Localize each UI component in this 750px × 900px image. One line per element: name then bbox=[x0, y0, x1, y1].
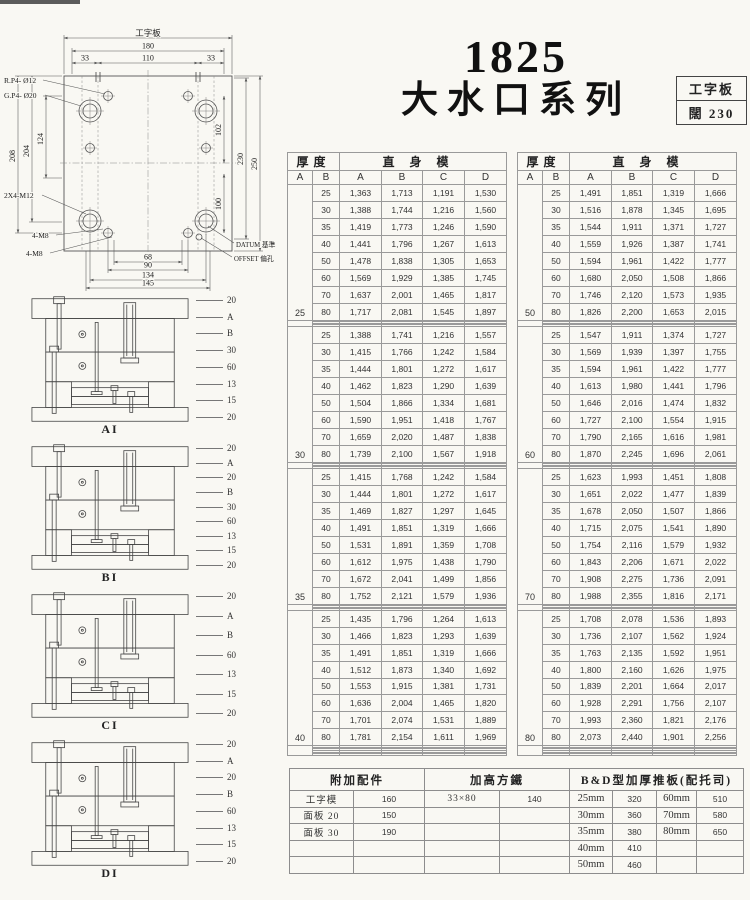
value-cell: 70 bbox=[543, 286, 570, 303]
value-cell: 1,823 bbox=[382, 377, 423, 394]
value-cell: 1,851 bbox=[382, 519, 423, 536]
value-cell: 25 bbox=[313, 326, 340, 343]
value-cell: 2,165 bbox=[612, 428, 653, 445]
callout-leaders bbox=[42, 80, 234, 257]
value-cell: 1,666 bbox=[695, 185, 737, 202]
bd-value-2 bbox=[697, 857, 744, 874]
accessory-value: 160 bbox=[354, 791, 425, 808]
value-cell: 25 bbox=[543, 610, 570, 627]
callout-label: A bbox=[227, 612, 234, 621]
bd-size-2 bbox=[657, 857, 697, 874]
value-cell: 40 bbox=[313, 377, 340, 394]
value-cell: 35 bbox=[313, 360, 340, 377]
value-cell: 1,746 bbox=[570, 286, 612, 303]
value-cell: 1,216 bbox=[423, 201, 465, 218]
value-cell: 70 bbox=[543, 712, 570, 729]
value-cell: 1,897 bbox=[465, 303, 507, 320]
bd-size-1: 50mm bbox=[570, 857, 613, 874]
value-cell: 35 bbox=[313, 502, 340, 519]
riser-value bbox=[500, 824, 570, 841]
bottom-table-row: 面板 3019035mm38080mm650 bbox=[290, 824, 744, 841]
value-cell: 1,969 bbox=[465, 729, 507, 746]
column-header-row: ABABCD bbox=[518, 171, 737, 185]
col-header: D bbox=[695, 171, 737, 185]
thickness-a-value: 25 bbox=[288, 185, 313, 321]
callout-label: 13 bbox=[227, 532, 236, 541]
value-cell: 1,305 bbox=[423, 252, 465, 269]
value-cell: 30 bbox=[543, 485, 570, 502]
value-cell: 1,381 bbox=[423, 678, 465, 695]
riser-value bbox=[500, 840, 570, 857]
leader-line bbox=[196, 300, 223, 301]
table-row: 351,7632,1351,5921,951 bbox=[518, 644, 737, 661]
leader-line bbox=[196, 463, 223, 464]
value-cell: 1,890 bbox=[695, 519, 737, 536]
value-cell: 2,100 bbox=[612, 411, 653, 428]
value-cell: 1,441 bbox=[340, 235, 382, 252]
col-header: B bbox=[382, 171, 423, 185]
callout-label: 30 bbox=[227, 346, 236, 355]
callout-label: 13 bbox=[227, 670, 236, 679]
plan-svg: 工字板 180 33 110 33 208 204 124 102 100 23… bbox=[2, 26, 287, 298]
callout-label: B bbox=[227, 329, 233, 338]
table-row: 701,7012,0741,5311,889 bbox=[288, 712, 507, 729]
value-cell: 1,666 bbox=[465, 519, 507, 536]
table-row: 301,4441,8011,2721,617 bbox=[288, 485, 507, 502]
value-cell: 1,696 bbox=[653, 445, 695, 462]
value-cell: 2,107 bbox=[695, 695, 737, 712]
value-cell: 1,639 bbox=[465, 377, 507, 394]
table-row: 351,4441,8011,2721,617 bbox=[288, 360, 507, 377]
value-cell: 1,363 bbox=[340, 185, 382, 202]
callout-label: B bbox=[227, 631, 233, 640]
value-cell: 1,727 bbox=[695, 218, 737, 235]
value-cell: 1,438 bbox=[423, 553, 465, 570]
value-cell: 60 bbox=[313, 269, 340, 286]
accessory-value bbox=[354, 857, 425, 874]
mold-section-drawing bbox=[26, 740, 194, 866]
value-cell: 1,388 bbox=[340, 201, 382, 218]
callout-label: 20 bbox=[227, 709, 236, 718]
value-cell: 1,418 bbox=[423, 411, 465, 428]
value-cell: 1,491 bbox=[570, 185, 612, 202]
section-caption: BI bbox=[26, 570, 194, 585]
value-cell: 2,120 bbox=[612, 286, 653, 303]
value-cell: 1,319 bbox=[653, 185, 695, 202]
col-header: A bbox=[518, 171, 543, 185]
accessory-value: 190 bbox=[354, 824, 425, 841]
bd-value-1: 360 bbox=[613, 807, 657, 824]
value-cell: 70 bbox=[543, 570, 570, 587]
value-cell: 2,041 bbox=[382, 570, 423, 587]
thickness-a-empty bbox=[288, 746, 313, 756]
value-cell: 1,817 bbox=[465, 286, 507, 303]
value-cell: 2,017 bbox=[695, 678, 737, 695]
value-cell: 1,560 bbox=[465, 201, 507, 218]
value-cell: 60 bbox=[313, 411, 340, 428]
value-cell: 1,832 bbox=[695, 394, 737, 411]
leader-line bbox=[196, 448, 223, 449]
bd-size-1: 35mm bbox=[570, 824, 613, 841]
value-cell: 1,617 bbox=[465, 485, 507, 502]
m12-callout: 2X4-M12 bbox=[4, 191, 34, 200]
value-cell: 2,022 bbox=[612, 485, 653, 502]
value-cell: 35 bbox=[543, 360, 570, 377]
table-row: 701,9082,2751,7362,091 bbox=[518, 570, 737, 587]
value-cell: 40 bbox=[313, 661, 340, 678]
accessory-name: 工字模 bbox=[290, 791, 354, 808]
table-row: 601,9282,2911,7562,107 bbox=[518, 695, 737, 712]
table-row: 351,5441,9111,3711,727 bbox=[518, 218, 737, 235]
leader-line bbox=[196, 350, 223, 351]
value-cell: 1,856 bbox=[465, 570, 507, 587]
dimension-callout: 20 bbox=[196, 444, 236, 453]
value-cell: 60 bbox=[313, 695, 340, 712]
leader-line bbox=[196, 694, 223, 695]
value-cell: 60 bbox=[313, 553, 340, 570]
value-cell: 1,584 bbox=[465, 343, 507, 360]
bd-header: B&D型加厚推板(配托司) bbox=[570, 769, 744, 791]
value-cell: 1,444 bbox=[340, 485, 382, 502]
value-cell: 50 bbox=[543, 394, 570, 411]
value-cell: 1,246 bbox=[423, 218, 465, 235]
value-cell: 2,200 bbox=[612, 303, 653, 320]
riser-size bbox=[425, 824, 500, 841]
table-row: 401,4411,7961,2671,613 bbox=[288, 235, 507, 252]
value-cell: 1,592 bbox=[653, 644, 695, 661]
value-cell: 1,908 bbox=[570, 570, 612, 587]
value-cell: 2,020 bbox=[382, 428, 423, 445]
offset-callout: OFFSET 偏孔 bbox=[234, 254, 274, 263]
value-cell: 1,756 bbox=[653, 695, 695, 712]
value-cell: 1,681 bbox=[465, 394, 507, 411]
value-cell: 1,465 bbox=[423, 695, 465, 712]
value-cell: 2,160 bbox=[612, 661, 653, 678]
value-cell: 2,081 bbox=[382, 303, 423, 320]
value-cell: 1,646 bbox=[570, 394, 612, 411]
callout-label: 20 bbox=[227, 296, 236, 305]
bd-size-1: 30mm bbox=[570, 807, 613, 824]
value-cell: 1,961 bbox=[612, 360, 653, 377]
value-cell: 2,001 bbox=[382, 286, 423, 303]
thickness-a-empty bbox=[518, 746, 543, 756]
empty-row bbox=[518, 754, 737, 756]
value-cell: 1,584 bbox=[465, 468, 507, 485]
callout-label: 15 bbox=[227, 546, 236, 555]
value-cell: 30 bbox=[313, 343, 340, 360]
table-row: 801,9882,3551,8162,171 bbox=[518, 587, 737, 604]
value-cell: 1,216 bbox=[423, 326, 465, 343]
empty-cell bbox=[695, 754, 737, 756]
value-cell: 1,415 bbox=[340, 468, 382, 485]
table-row: 601,6121,9751,4381,790 bbox=[288, 553, 507, 570]
value-cell: 1,562 bbox=[653, 627, 695, 644]
accessory-name: 面板 20 bbox=[290, 807, 354, 824]
value-cell: 1,870 bbox=[570, 445, 612, 462]
value-cell: 1,918 bbox=[465, 445, 507, 462]
value-cell: 30 bbox=[543, 343, 570, 360]
value-cell: 1,507 bbox=[653, 502, 695, 519]
bd-size-1: 25mm bbox=[570, 791, 613, 808]
value-cell: 1,293 bbox=[423, 627, 465, 644]
value-cell: 1,924 bbox=[695, 627, 737, 644]
value-cell: 2,022 bbox=[695, 553, 737, 570]
bottom-header-row: 附加配件 加高方鐵 B&D型加厚推板(配托司) bbox=[290, 769, 744, 791]
table-row: 351,4911,8511,3191,666 bbox=[288, 644, 507, 661]
value-cell: 1,444 bbox=[340, 360, 382, 377]
bd-value-2: 580 bbox=[697, 807, 744, 824]
value-cell: 1,951 bbox=[695, 644, 737, 661]
table-row: 401,4621,8231,2901,639 bbox=[288, 377, 507, 394]
value-cell: 1,297 bbox=[423, 502, 465, 519]
value-cell: 1,491 bbox=[340, 644, 382, 661]
table-row: 60251,5471,9111,3741,727 bbox=[518, 326, 737, 343]
value-cell: 30 bbox=[543, 201, 570, 218]
table-row: 701,6592,0201,4871,838 bbox=[288, 428, 507, 445]
svg-text:110: 110 bbox=[142, 54, 154, 63]
dimension-callout: 60 bbox=[196, 363, 236, 372]
leader-line bbox=[196, 384, 223, 385]
leader-line bbox=[196, 417, 223, 418]
leader-line bbox=[196, 507, 223, 508]
value-cell: 2,206 bbox=[612, 553, 653, 570]
thickness-a-value: 80 bbox=[518, 610, 543, 746]
value-cell: 2,176 bbox=[695, 712, 737, 729]
value-cell: 1,739 bbox=[340, 445, 382, 462]
bd-size-2: 70mm bbox=[657, 807, 697, 824]
leader-line bbox=[196, 844, 223, 845]
dimension-callout: 60 bbox=[196, 807, 236, 816]
col-header: B bbox=[543, 171, 570, 185]
table-row: 601,5691,9291,3851,745 bbox=[288, 269, 507, 286]
m8-callout-2: 4-M8 bbox=[26, 249, 43, 258]
col-header: A bbox=[288, 171, 313, 185]
value-cell: 2,100 bbox=[382, 445, 423, 462]
riser-value bbox=[500, 807, 570, 824]
leader-line bbox=[196, 744, 223, 745]
value-cell: 1,544 bbox=[570, 218, 612, 235]
value-cell: 1,359 bbox=[423, 536, 465, 553]
empty-cell bbox=[653, 754, 695, 756]
value-cell: 1,801 bbox=[382, 485, 423, 502]
value-cell: 1,626 bbox=[653, 661, 695, 678]
value-cell: 40 bbox=[543, 519, 570, 536]
table-row: 701,6722,0411,4991,856 bbox=[288, 570, 507, 587]
table-row: 301,5161,8781,3451,695 bbox=[518, 201, 737, 218]
value-cell: 2,275 bbox=[612, 570, 653, 587]
callout-label: A bbox=[227, 757, 234, 766]
value-cell: 1,827 bbox=[382, 502, 423, 519]
leader-line bbox=[196, 811, 223, 812]
section-caption: AI bbox=[26, 422, 194, 437]
value-cell: 1,980 bbox=[612, 377, 653, 394]
value-cell: 1,422 bbox=[653, 360, 695, 377]
svg-text:204: 204 bbox=[22, 145, 31, 157]
callout-label: 20 bbox=[227, 561, 236, 570]
table-row: 301,7362,1071,5621,924 bbox=[518, 627, 737, 644]
value-cell: 1,616 bbox=[653, 428, 695, 445]
callout-label: B bbox=[227, 790, 233, 799]
table-row: 351,4691,8271,2971,645 bbox=[288, 502, 507, 519]
leader-line bbox=[196, 596, 223, 597]
empty-cell bbox=[313, 754, 340, 756]
table-header-row: 厚度 直身模 bbox=[518, 153, 737, 171]
callout-label: 20 bbox=[227, 740, 236, 749]
value-cell: 1,816 bbox=[653, 587, 695, 604]
table-row: 801,8262,2001,6532,015 bbox=[518, 303, 737, 320]
section-figures: 20AB3060131520 AI bbox=[26, 296, 266, 888]
value-cell: 1,451 bbox=[653, 468, 695, 485]
value-cell: 1,491 bbox=[340, 519, 382, 536]
leader-line bbox=[196, 861, 223, 862]
value-cell: 1,617 bbox=[465, 360, 507, 377]
value-cell: 1,911 bbox=[612, 326, 653, 343]
value-cell: 1,487 bbox=[423, 428, 465, 445]
value-cell: 40 bbox=[543, 235, 570, 252]
value-cell: 2,061 bbox=[695, 445, 737, 462]
value-cell: 1,768 bbox=[382, 468, 423, 485]
value-cell: 1,929 bbox=[382, 269, 423, 286]
accessories-table: 附加配件 加高方鐵 B&D型加厚推板(配托司) 工字模16033×8014025… bbox=[289, 768, 744, 874]
table-row: 351,6782,0501,5071,866 bbox=[518, 502, 737, 519]
table-row: 35251,4151,7681,2421,584 bbox=[288, 468, 507, 485]
leader-line bbox=[196, 400, 223, 401]
svg-text:33: 33 bbox=[207, 54, 215, 63]
thickness-a-value: 30 bbox=[288, 326, 313, 462]
value-cell: 1,901 bbox=[653, 729, 695, 746]
col-header: A bbox=[570, 171, 612, 185]
value-cell: 1,939 bbox=[612, 343, 653, 360]
value-cell: 1,745 bbox=[465, 269, 507, 286]
value-cell: 1,838 bbox=[382, 252, 423, 269]
value-cell: 2,360 bbox=[612, 712, 653, 729]
value-cell: 2,355 bbox=[612, 587, 653, 604]
value-cell: 1,512 bbox=[340, 661, 382, 678]
callout-label: 15 bbox=[227, 396, 236, 405]
scan-artifact bbox=[0, 0, 80, 4]
table-row: 301,4151,7661,2421,584 bbox=[288, 343, 507, 360]
callout-label: 15 bbox=[227, 840, 236, 849]
value-cell: 1,678 bbox=[570, 502, 612, 519]
value-cell: 1,741 bbox=[695, 235, 737, 252]
bottom-table-row: 工字模16033×8014025mm32060mm510 bbox=[290, 791, 744, 808]
value-cell: 1,242 bbox=[423, 468, 465, 485]
svg-text:180: 180 bbox=[142, 42, 154, 51]
spec-plate-type: 工字板 bbox=[677, 77, 746, 101]
value-cell: 1,741 bbox=[382, 326, 423, 343]
svg-text:230: 230 bbox=[236, 153, 245, 165]
plan-top-label: 工字板 bbox=[135, 28, 161, 38]
thickness-header: 厚度 bbox=[288, 153, 340, 171]
value-cell: 1,843 bbox=[570, 553, 612, 570]
callout-label: 60 bbox=[227, 807, 236, 816]
bd-value-1: 380 bbox=[613, 824, 657, 841]
value-cell: 1,466 bbox=[340, 627, 382, 644]
dimension-texts: 工字板 180 33 110 33 208 204 124 102 100 23… bbox=[8, 28, 259, 288]
svg-text:33: 33 bbox=[81, 54, 89, 63]
empty-cell bbox=[382, 754, 423, 756]
value-cell: 1,191 bbox=[423, 185, 465, 202]
value-cell: 80 bbox=[313, 587, 340, 604]
bottom-table-row: 40mm410 bbox=[290, 840, 744, 857]
dimension-callout: 30 bbox=[196, 503, 236, 512]
table-row: 301,3881,7441,2161,560 bbox=[288, 201, 507, 218]
svg-text:90: 90 bbox=[144, 261, 152, 270]
empty-cell bbox=[570, 754, 612, 756]
riser-size bbox=[425, 857, 500, 874]
table-row: 801,7392,1001,5671,918 bbox=[288, 445, 507, 462]
value-cell: 2,078 bbox=[612, 610, 653, 627]
value-cell: 1,932 bbox=[695, 536, 737, 553]
value-cell: 80 bbox=[543, 587, 570, 604]
leader-line bbox=[196, 655, 223, 656]
value-cell: 1,851 bbox=[382, 644, 423, 661]
value-cell: 2,004 bbox=[382, 695, 423, 712]
svg-text:145: 145 bbox=[142, 279, 154, 288]
body-header: 直身模 bbox=[340, 153, 507, 171]
value-cell: 1,866 bbox=[382, 394, 423, 411]
section-callouts: 20A20B3060131520 bbox=[196, 444, 236, 570]
callout-label: 20 bbox=[227, 592, 236, 601]
value-cell: 1,590 bbox=[340, 411, 382, 428]
bottom-table-row: 面板 2015030mm36070mm580 bbox=[290, 807, 744, 824]
column-header-row: ABABCD bbox=[288, 171, 507, 185]
empty-cell bbox=[423, 754, 465, 756]
value-cell: 1,422 bbox=[653, 252, 695, 269]
riser-size bbox=[425, 840, 500, 857]
table-row: 401,5121,8731,3401,692 bbox=[288, 661, 507, 678]
bd-size-1: 40mm bbox=[570, 840, 613, 857]
table-row: 701,6372,0011,4651,817 bbox=[288, 286, 507, 303]
table-row: 70251,6231,9931,4511,808 bbox=[518, 468, 737, 485]
value-cell: 1,781 bbox=[340, 729, 382, 746]
value-cell: 1,547 bbox=[570, 326, 612, 343]
value-cell: 70 bbox=[543, 428, 570, 445]
table-row: 801,7522,1211,5791,936 bbox=[288, 587, 507, 604]
accessory-value: 150 bbox=[354, 807, 425, 824]
bd-value-2 bbox=[697, 840, 744, 857]
value-cell: 30 bbox=[313, 201, 340, 218]
empty-cell bbox=[340, 754, 382, 756]
value-cell: 2,256 bbox=[695, 729, 737, 746]
value-cell: 1,264 bbox=[423, 610, 465, 627]
bd-value-2: 650 bbox=[697, 824, 744, 841]
value-cell: 1,727 bbox=[695, 326, 737, 343]
model-number: 1825 bbox=[358, 34, 674, 80]
value-cell: 50 bbox=[313, 252, 340, 269]
value-cell: 1,820 bbox=[465, 695, 507, 712]
dimension-callout: B bbox=[196, 631, 236, 640]
value-cell: 1,559 bbox=[570, 235, 612, 252]
value-cell: 1,419 bbox=[340, 218, 382, 235]
dimension-callout: B bbox=[196, 790, 236, 799]
value-cell: 2,135 bbox=[612, 644, 653, 661]
value-cell: 1,267 bbox=[423, 235, 465, 252]
value-cell: 1,993 bbox=[570, 712, 612, 729]
value-cell: 1,790 bbox=[570, 428, 612, 445]
value-cell: 60 bbox=[543, 411, 570, 428]
size-table-right: 厚度 直身模 ABABCD 50251,4911,8511,3191,66630… bbox=[517, 152, 737, 756]
dimension-callout: 20 bbox=[196, 773, 236, 782]
value-cell: 50 bbox=[543, 678, 570, 695]
dimension-callout: A bbox=[196, 313, 236, 322]
value-cell: 1,713 bbox=[382, 185, 423, 202]
bd-value-1: 410 bbox=[613, 840, 657, 857]
value-cell: 1,579 bbox=[653, 536, 695, 553]
leader-line bbox=[196, 674, 223, 675]
value-cell: 1,839 bbox=[570, 678, 612, 695]
value-cell: 1,545 bbox=[423, 303, 465, 320]
